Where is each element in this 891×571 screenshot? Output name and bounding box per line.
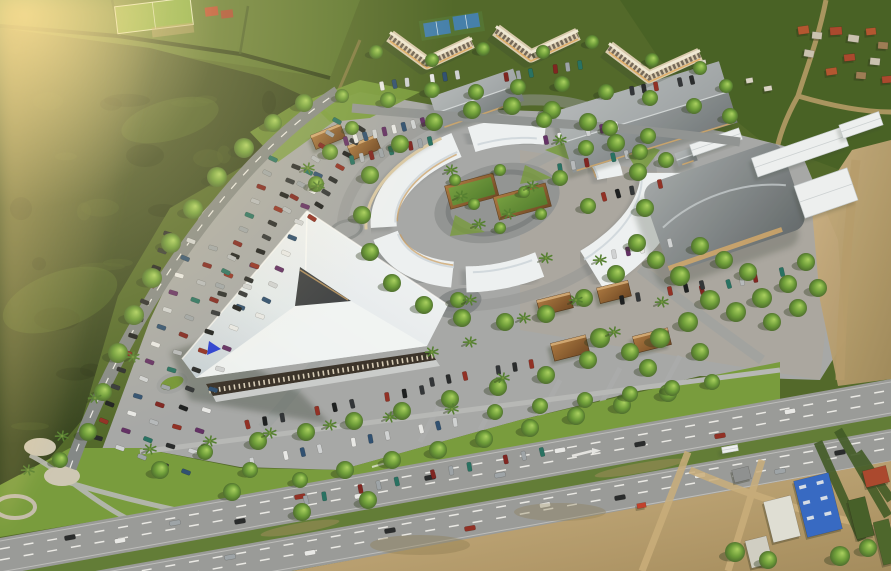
lighting-overlays	[0, 0, 891, 571]
aerial-scene-svg	[0, 0, 891, 571]
aerial-render-stage	[0, 0, 891, 571]
